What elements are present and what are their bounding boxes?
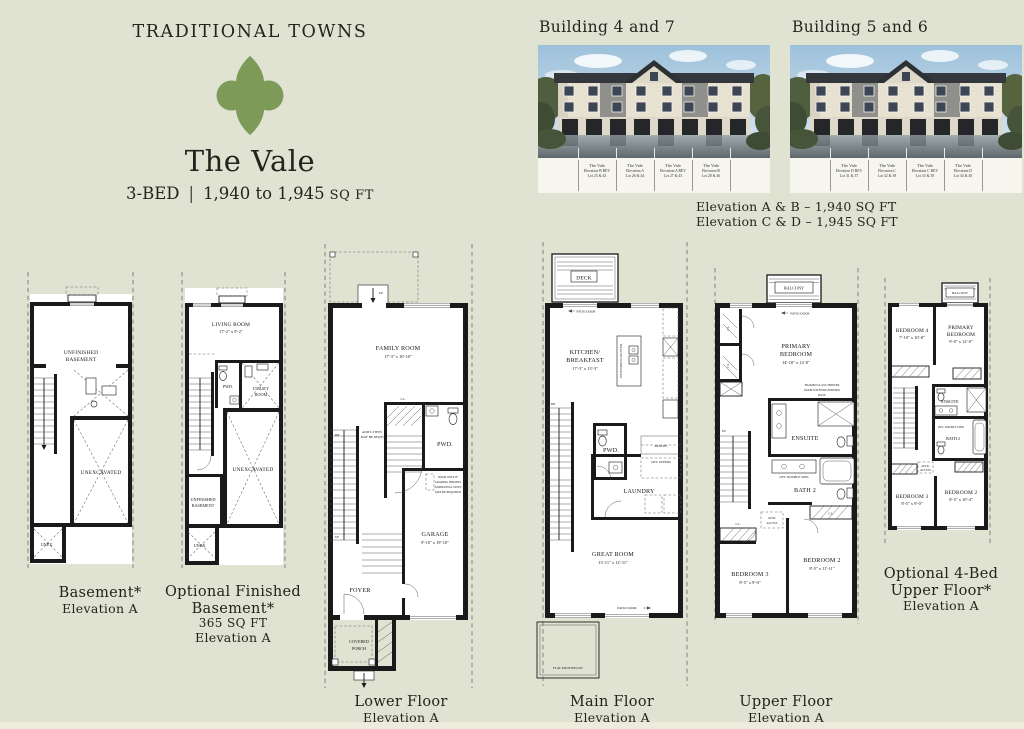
unit-label: The Vale Elevation C REV Lot 33 & 39 (906, 163, 944, 178)
entry-stoop: UP (358, 285, 388, 304)
flat-roof-below: FLAT ROOF BELOW (537, 622, 599, 678)
room-dim: 13'-11" x 12'-11" (598, 560, 628, 565)
svg-text:BALCONY: BALCONY (784, 286, 804, 291)
svg-text:CL.: CL. (726, 325, 730, 330)
unit-label: The Vale Elevation C Lot 32 & 38 (868, 163, 906, 178)
room-label: UNEXCAVATED (81, 470, 122, 476)
svg-text:DN: DN (335, 433, 340, 437)
svg-text:BASE: BASE (818, 393, 826, 397)
unit-label: The Vale Elevation A Lot 26 & 44 (616, 163, 654, 178)
svg-text:DECK: DECK (576, 276, 591, 282)
quatrefoil-logo-icon (213, 55, 287, 136)
floorplan-optional-basement: LIVING ROOM 17'-2" x 9'-2" PWD. UTILITY … (175, 266, 295, 578)
bed-count: 3-BED (126, 184, 179, 203)
elevation-note-ab: Elevation A & B – 1,940 SQ FT (696, 200, 898, 215)
building-4-7-title: Building 4 and 7 (539, 18, 675, 36)
caption-main: Main Floor Elevation A (570, 694, 654, 725)
room-label: ROOM (255, 392, 268, 397)
building-4-7-photo (538, 45, 770, 158)
svg-text:DOOR WITH PRE-FORMED: DOOR WITH PRE-FORMED (804, 388, 839, 392)
room-label: UNFINISHED (190, 497, 215, 502)
room-label: BEDROOM 2 (945, 490, 978, 496)
deck: DECK (552, 254, 618, 302)
room-label: BEDROOM (947, 332, 975, 338)
building-4-7-unit-strip: The Vale Elevation B REV Lot 25 & 43 The… (538, 158, 770, 193)
room-label: BEDROOM (780, 351, 813, 358)
caption-upper: Upper Floor Elevation A (739, 694, 832, 725)
porch-step (354, 671, 374, 688)
note: DOOR ONLY IF (438, 475, 458, 479)
room-dim: 8'-5" x 9'-0" (901, 501, 922, 506)
room-label: ENSUITE (791, 435, 818, 442)
note: GRADING PERMITS (435, 480, 462, 484)
svg-text:CL.: CL. (400, 397, 405, 401)
bottom-strip (0, 722, 1024, 729)
room-dim: 7'-10" x 10'-8" (899, 335, 925, 340)
svg-text:UP: UP (379, 291, 383, 295)
building-4-7-card: The Vale Elevation B REV Lot 25 & 43 The… (538, 45, 770, 193)
svg-text:PATIO DOOR: PATIO DOOR (617, 606, 637, 610)
building-5-6-photo (790, 45, 1022, 158)
room-dim: 9'-0" x 12'-0" (949, 339, 973, 344)
svg-text:FRAMED GLASS SHOWER: FRAMED GLASS SHOWER (805, 383, 840, 387)
svg-text:CL.: CL. (828, 512, 833, 516)
unit-label: The Vale Elevation D REV Lot 31 & 37 (830, 163, 868, 178)
caption-basement: Basement* Elevation A (59, 585, 142, 616)
room-label: BEDROOM 3 (896, 494, 929, 500)
room-label: BEDROOM 3 (731, 571, 768, 578)
floorplan-basement: UNFINISHED BASEMENT UNEXCAVATED UNEX. (20, 266, 150, 582)
building-5-6-title: Building 5 and 6 (792, 18, 928, 36)
svg-text:FLAT ROOF BELOW: FLAT ROOF BELOW (553, 666, 584, 670)
room-label: PWD. (603, 447, 619, 454)
unit-label: The Vale Elevation A REV Lot 27 & 45 (654, 163, 692, 178)
room-label: PRIMARY (781, 343, 811, 350)
room-label: UNFINISHED (64, 350, 98, 356)
building-5-6-unit-strip: The Vale Elevation D REV Lot 31 & 37 The… (790, 158, 1022, 193)
spec-divider: | (189, 184, 195, 203)
room-label: FAMILY ROOM (376, 345, 421, 352)
room-label: UNEXCAVATED (233, 467, 274, 473)
room-label: PWD. (437, 441, 453, 448)
plan-name: The Vale (185, 144, 315, 178)
note: OPT. DOUBLE SINK (779, 475, 809, 479)
room-label: PORCH (352, 646, 366, 651)
room-dim: 17'-2" x 9'-2" (219, 329, 243, 334)
note: MAY BE REQ'D (361, 435, 384, 439)
room-dim: 9'-10" x 19'-10" (421, 540, 449, 545)
room-label: BEDROOM 4 (896, 328, 929, 334)
room-label: BASEMENT (66, 357, 97, 363)
room-label: PRIMARY (948, 325, 974, 331)
room-dim: 8'-5" x 10'-4" (949, 497, 973, 502)
svg-text:ATTIC: ATTIC (768, 516, 776, 520)
balcony: BALCONY (767, 275, 821, 303)
unit-label: The Vale Elevation D Lot 34 & 40 (944, 163, 982, 178)
svg-text:UP: UP (335, 535, 339, 539)
room-label: BREAKFAST (566, 357, 603, 364)
svg-text:PANTRY: PANTRY (655, 444, 668, 448)
building-5-6-card: The Vale Elevation D REV Lot 31 & 37 The… (790, 45, 1022, 193)
svg-text:ACCESS: ACCESS (767, 521, 778, 525)
unit-label: The Vale Elevation B Lot 28 & 46 (692, 163, 730, 178)
room-label: UNEX. (194, 543, 207, 548)
room-label: GREAT ROOM (592, 551, 634, 558)
plan-specs: 3-BED | 1,940 to 1,945 SQ FT (126, 184, 374, 203)
room-label: BATH 2 (946, 436, 960, 441)
svg-text:CL.: CL. (726, 362, 730, 367)
balcony: BALCONY (942, 283, 978, 303)
room-label: BATH 2 (794, 487, 816, 494)
note: OPT. DOUBLE SINK (938, 425, 965, 429)
room-label: ENSUITE (941, 399, 959, 404)
floorplan-lower: UP DN UP CL. (318, 240, 478, 692)
floorplan-main: DECK PATIO DOOR EXTENDED COUNTER (535, 240, 695, 690)
room-label: FOYER (349, 587, 371, 594)
elevation-notes: Elevation A & B – 1,940 SQ FT Elevation … (696, 200, 898, 230)
room-label: UTILITY (253, 386, 270, 391)
floorplan-upper: BALCONY PATIO DOOR CL. CL. (708, 266, 864, 628)
room-label: PWD. (223, 384, 233, 389)
room-label: LIVING ROOM (212, 322, 250, 328)
caption-optional-basement: Optional Finished Basement* 365 SQ FT El… (165, 584, 301, 645)
note: ADD'L STEPS (362, 430, 382, 434)
elevation-note-cd: Elevation C & D – 1,945 SQ FT (696, 215, 898, 230)
room-label: GARAGE (422, 531, 449, 538)
svg-text:UP: UP (722, 429, 726, 433)
svg-text:PATIO DOOR: PATIO DOOR (576, 310, 596, 314)
caption-optional-upper: Optional 4-Bed Upper Floor* Elevation A (884, 566, 998, 613)
svg-text:PATIO DOOR: PATIO DOOR (790, 312, 810, 316)
note: ADDITIONAL STEPS (435, 485, 462, 489)
floorplan-optional-upper: BALCONY (875, 276, 1024, 548)
kitchen-island: EXTENDED COUNTER (617, 336, 641, 386)
svg-text:OPT. UPPERS: OPT. UPPERS (651, 460, 671, 464)
svg-text:ACCESS: ACCESS (920, 468, 931, 472)
room-dim: 14'-10" x 12'-0" (782, 360, 810, 365)
room-label: BEDROOM 2 (803, 557, 840, 564)
room-label: KITCHEN/ (570, 349, 601, 356)
room-label: COVERED (349, 639, 369, 644)
note: MAY BE REQUIRED (435, 490, 461, 494)
room-label: UNEX. (41, 542, 54, 547)
room-dim: 8'-5" x 9'-0" (739, 580, 760, 585)
svg-text:CL.: CL. (735, 522, 740, 526)
unit-label: The Vale Elevation B REV Lot 25 & 43 (578, 163, 616, 178)
room-dim: 17'-3" x 10'-10" (384, 354, 412, 359)
caption-lower: Lower Floor Elevation A (354, 694, 447, 725)
svg-text:EXTENDED COUNTER: EXTENDED COUNTER (619, 343, 623, 378)
sqft-range: 1,940 to 1,945 (203, 184, 325, 203)
room-dim: 17'-3" x 13'-3" (572, 366, 598, 371)
room-label: LAUNDRY (623, 488, 655, 495)
room-dim: 8'-5" x 11'-11" (809, 566, 835, 571)
svg-text:BALCONY: BALCONY (952, 291, 969, 295)
svg-text:DN: DN (551, 402, 556, 406)
brand-title: TRADITIONAL TOWNS (132, 22, 367, 42)
room-label: BASEMENT (192, 503, 215, 508)
sqft-unit: SQ FT (330, 188, 374, 203)
